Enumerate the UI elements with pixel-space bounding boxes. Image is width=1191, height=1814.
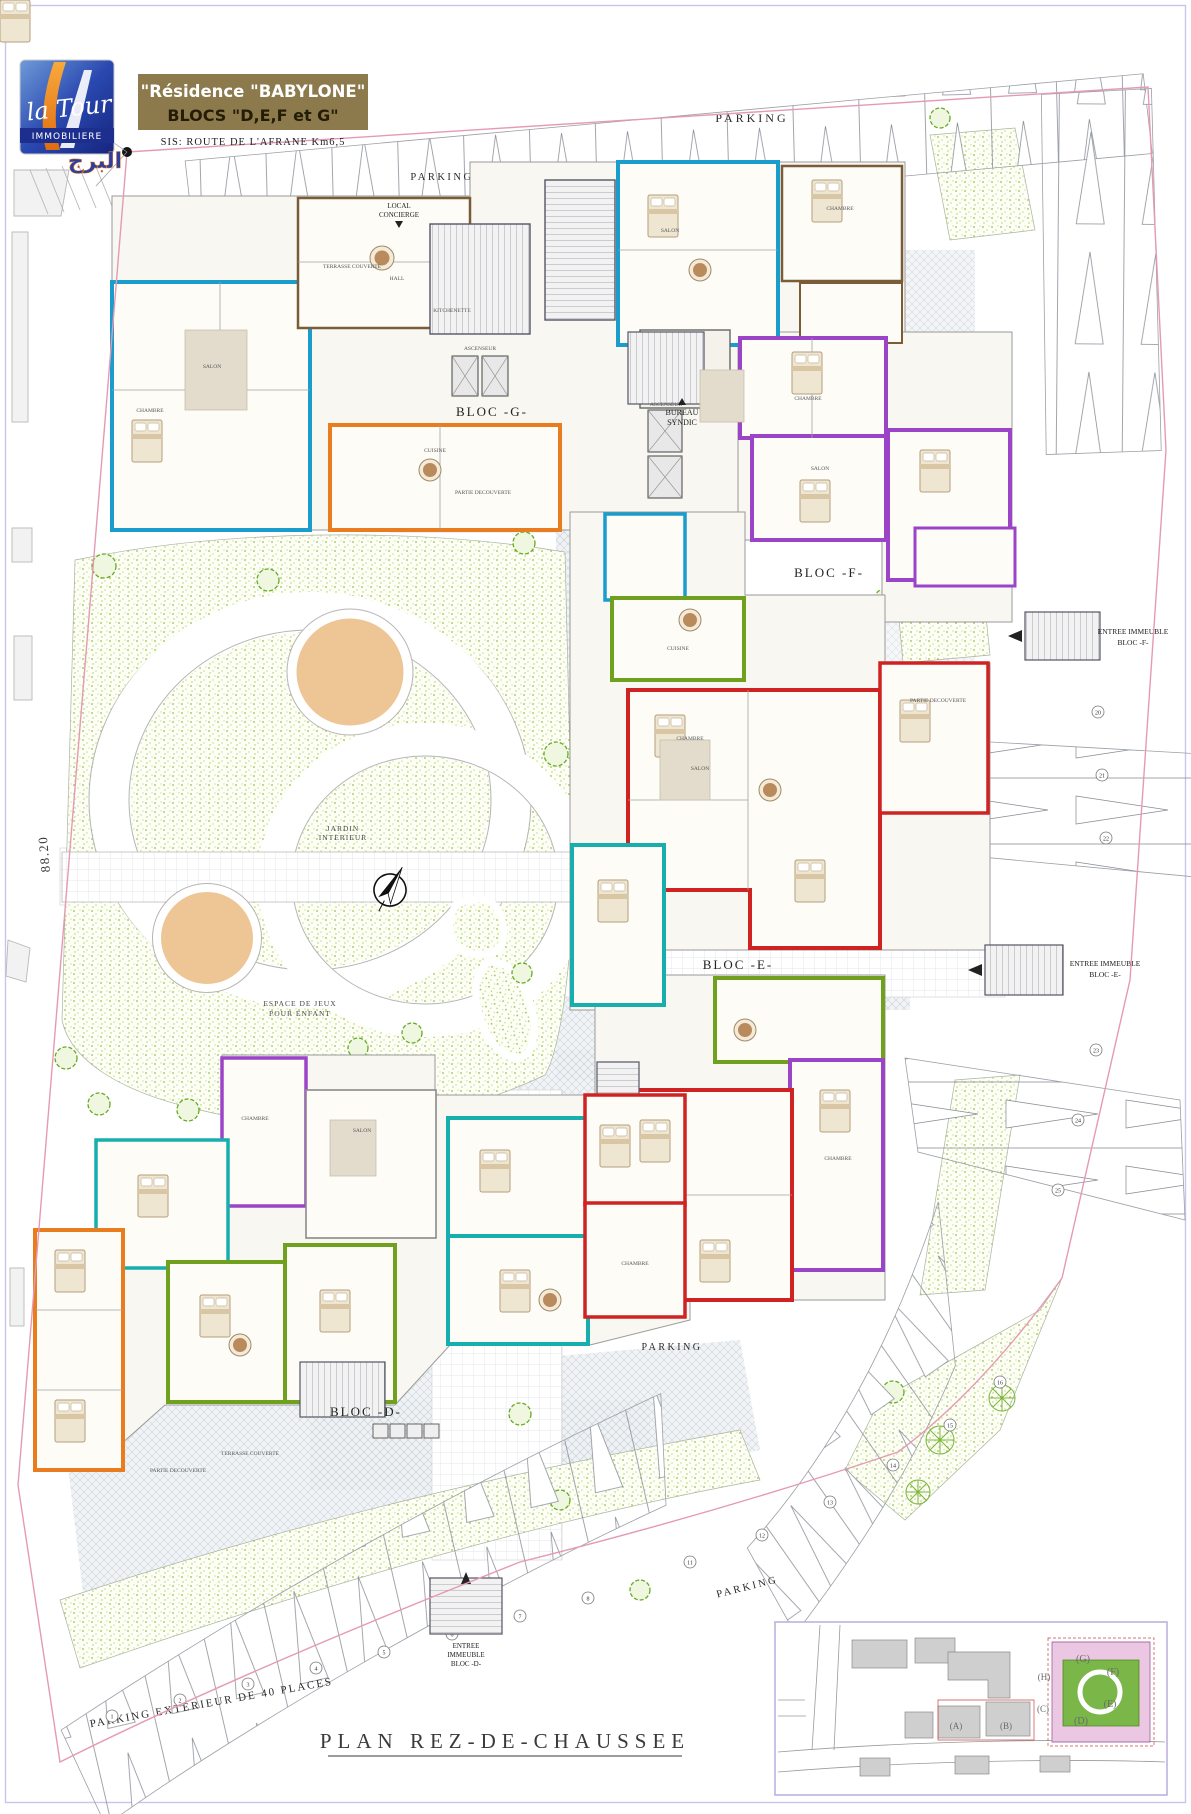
- room-label-hall: HALL: [390, 276, 405, 282]
- title-banner: "Résidence "BABYLONE" BLOCS "D,E,F et G"…: [138, 74, 368, 148]
- room-label-salon: SALON: [811, 466, 829, 472]
- stall-number: 20: [1095, 710, 1101, 716]
- mini-map-bloc-e: (E): [1104, 1699, 1117, 1710]
- stall-number: 3: [247, 1682, 250, 1688]
- stall-number: 16: [997, 1380, 1003, 1386]
- entree-d-line2: IMMEUBLE: [447, 1651, 484, 1659]
- room-label-chambre: CHAMBRE: [794, 396, 822, 402]
- mini-map-bloc-b: (B): [1000, 1721, 1012, 1731]
- room-label-salon: SALON: [661, 228, 679, 234]
- local-concierge-line2: CONCIERGE: [379, 211, 419, 219]
- stall-number: 7: [519, 1614, 522, 1620]
- entree-e-line1: ENTREE IMMEUBLE: [1070, 959, 1141, 968]
- room-label-terrasse: TERRASSE COUVERTE: [221, 1451, 280, 1457]
- stall-number: 2: [179, 1698, 182, 1704]
- mini-map-bloc-d: (D): [1074, 1716, 1088, 1727]
- mini-map-bloc-h: (H): [1038, 1672, 1051, 1682]
- mini-map-bloc-f: (F): [1107, 1667, 1119, 1678]
- room-label-chambre: CHAMBRE: [136, 408, 164, 414]
- bureau-syndic-line2: SYNDIC: [667, 418, 697, 427]
- stall-number: 11: [687, 1560, 693, 1566]
- entree-f-line1: ENTREE IMMEUBLE: [1098, 627, 1169, 636]
- jardin-label-line1: JARDIN: [327, 824, 360, 833]
- stall-number: 15: [947, 1423, 953, 1429]
- stall-number: 5: [383, 1650, 386, 1656]
- stall-number: 21: [1099, 773, 1105, 779]
- parking-label-mid-bottom: PARKING: [641, 1342, 702, 1353]
- logo-arabic-name: البرج: [68, 149, 122, 174]
- project-address: SIS: ROUTE DE L'AFRANE Km6,5: [161, 137, 346, 148]
- entree-f-line2: BLOC -F-: [1117, 638, 1149, 647]
- stall-number: 23: [1093, 1048, 1099, 1054]
- room-label-chambre: CHAMBRE: [241, 1116, 269, 1122]
- site-location-map: (A) (B) (C) (H) (G) (F) (E) (D): [775, 1622, 1167, 1795]
- stall-number: 1: [111, 1714, 114, 1720]
- stall-number: 4: [315, 1666, 318, 1672]
- espace-jeux-label-line1: ESPACE DE JEUX: [263, 999, 336, 1008]
- room-label-partie: PARTIE DECOUVERTE: [150, 1468, 207, 1474]
- room-label-partie: PARTIE DECOUVERTE: [910, 698, 967, 704]
- floor-plan-sheet: JARDIN INTERIEUR ESPACE DE JEUX POUR ENF…: [0, 0, 1191, 1814]
- entree-e-line2: BLOC -E-: [1089, 970, 1121, 979]
- room-label-kitchenette: KITCHENETTE: [433, 308, 471, 314]
- stall-number: 12: [759, 1533, 765, 1539]
- bed: [0, 0, 30, 42]
- bloc-g-label: BLOC -G-: [456, 404, 528, 419]
- bloc-d-label: BLOC -D-: [330, 1404, 402, 1419]
- room-label-chambre: CHAMBRE: [826, 206, 854, 212]
- room-label-terrasse: TERRASSE COUVERTE: [323, 264, 382, 270]
- room-label-chambre: CHAMBRE: [676, 736, 704, 742]
- local-concierge-line1: LOCAL: [387, 202, 410, 210]
- room-label-ascenseur: ASCENSEUR: [464, 346, 496, 352]
- stall-number: 14: [890, 1463, 896, 1469]
- logo-caption: IMMOBILIERE: [32, 132, 102, 142]
- stall-number: 8: [587, 1596, 590, 1602]
- bloc-e-label: BLOC -E-: [703, 957, 774, 972]
- room-label-salon: SALON: [353, 1128, 371, 1134]
- stall-number: 25: [1055, 1188, 1061, 1194]
- mini-map-bloc-c: (C): [1037, 1704, 1049, 1714]
- room-label-chambre: CHAMBRE: [824, 1156, 852, 1162]
- room-label-salon: SALON: [691, 766, 709, 772]
- sheet-title: PLAN REZ-DE-CHAUSSEE: [320, 1729, 690, 1756]
- entree-d-line3: BLOC -D-: [451, 1660, 482, 1668]
- room-label-cuisine: CUISINE: [667, 646, 689, 652]
- room-label-cuisine: CUISINE: [424, 448, 446, 454]
- espace-jeux-label-line2: POUR ENFANT: [269, 1009, 331, 1018]
- plan-title: PLAN REZ-DE-CHAUSSEE: [320, 1729, 690, 1753]
- bureau-syndic-line1: BUREAU: [666, 408, 699, 417]
- parking-label-top-right: PARKING: [715, 111, 788, 125]
- jardin-label-line2: INTERIEUR: [319, 833, 368, 842]
- mini-map-bloc-a: (A): [950, 1721, 963, 1731]
- stall-number: 24: [1075, 1118, 1081, 1124]
- bloc-f-label: BLOC -F-: [794, 565, 864, 580]
- room-label-salon: SALON: [203, 364, 221, 370]
- room-label-partie: PARTIE DECOUVERTE: [455, 490, 512, 496]
- mini-map-bloc-g: (G): [1076, 1654, 1090, 1665]
- parking-label-top-left: PARKING: [410, 172, 473, 183]
- project-title-line1: "Résidence "BABYLONE": [141, 82, 366, 101]
- room-label-chambre: CHAMBRE: [621, 1261, 649, 1267]
- entree-d-line1: ENTREE: [453, 1642, 480, 1650]
- stall-number: 13: [827, 1500, 833, 1506]
- project-title-line2: BLOCS "D,E,F et G": [167, 106, 338, 125]
- left-boundary-dimension: 88.20: [35, 835, 53, 873]
- stall-number: 22: [1103, 836, 1109, 842]
- plan-drawing: JARDIN INTERIEUR ESPACE DE JEUX POUR ENF…: [0, 0, 1191, 1814]
